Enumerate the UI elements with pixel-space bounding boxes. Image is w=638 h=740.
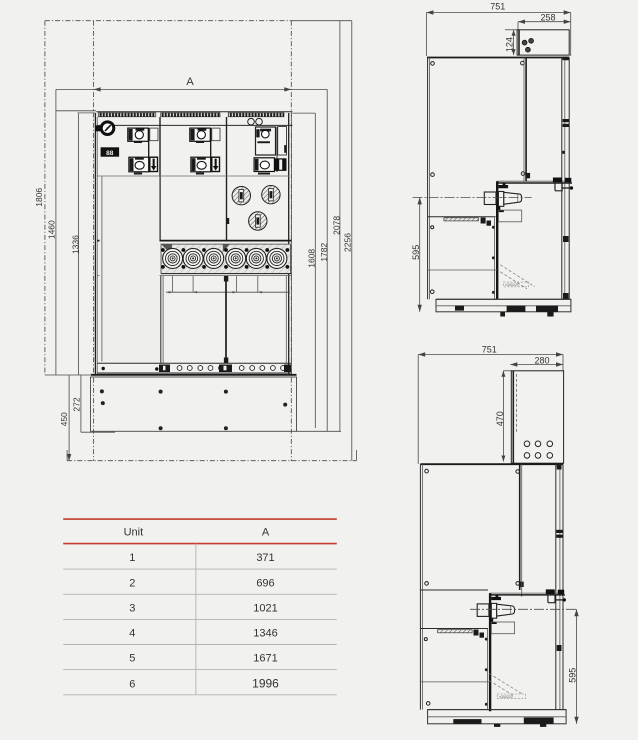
svg-text:4: 4 — [129, 628, 135, 640]
svg-text:2: 2 — [129, 577, 135, 589]
svg-text:595: 595 — [568, 668, 578, 683]
svg-text:1: 1 — [129, 552, 135, 564]
svg-text:¤300223: ¤300223 — [505, 283, 519, 287]
svg-text:280: 280 — [534, 355, 549, 365]
svg-text:1336: 1336 — [71, 235, 81, 254]
svg-text:2256: 2256 — [343, 233, 353, 252]
svg-text:5: 5 — [129, 653, 135, 665]
svg-text:124: 124 — [505, 37, 515, 52]
svg-text:450: 450 — [59, 412, 69, 426]
svg-text:1671: 1671 — [253, 653, 277, 665]
svg-text:272: 272 — [72, 397, 82, 411]
svg-text:371: 371 — [256, 552, 274, 564]
svg-text:1996: 1996 — [252, 676, 279, 690]
svg-text:2078: 2078 — [332, 216, 342, 235]
svg-text:595: 595 — [411, 245, 421, 260]
svg-text:696: 696 — [256, 577, 274, 589]
svg-text:3: 3 — [129, 602, 135, 614]
svg-text:258: 258 — [540, 13, 555, 23]
svg-text:470: 470 — [495, 411, 505, 426]
svg-text:¤300223: ¤300223 — [499, 695, 513, 699]
svg-text:1460: 1460 — [46, 220, 56, 239]
svg-text:1021: 1021 — [253, 602, 277, 614]
svg-text:1346: 1346 — [253, 628, 277, 640]
svg-text:A: A — [186, 76, 194, 88]
svg-text:6: 6 — [129, 678, 135, 690]
svg-text:1608: 1608 — [306, 249, 316, 268]
svg-text:A: A — [262, 527, 270, 539]
svg-text:1782: 1782 — [319, 242, 329, 261]
svg-text:Unit: Unit — [124, 527, 144, 539]
svg-text:88: 88 — [106, 150, 114, 157]
svg-text:1806: 1806 — [34, 188, 44, 207]
svg-text:751: 751 — [482, 345, 497, 355]
svg-text:751: 751 — [490, 2, 505, 12]
